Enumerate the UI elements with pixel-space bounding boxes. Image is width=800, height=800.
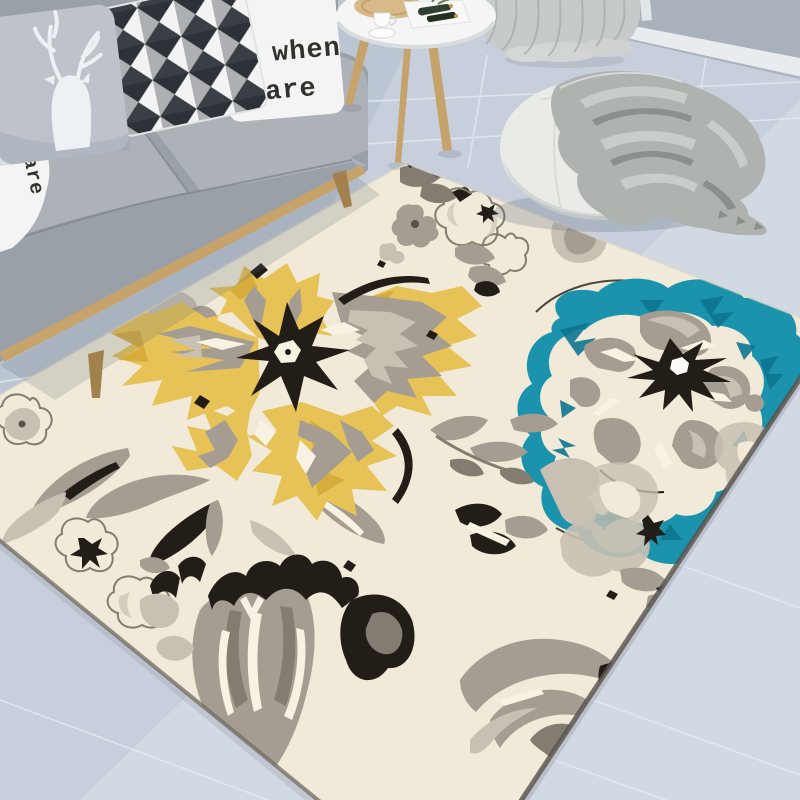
product-photo: are y when are <box>0 0 800 800</box>
saucer <box>369 28 395 38</box>
curtain-pool <box>580 39 632 57</box>
cup <box>374 13 390 27</box>
bottle-cap <box>449 4 453 8</box>
message-pillow-line2: are <box>264 74 318 108</box>
deer-pillow <box>0 3 130 166</box>
center-dot <box>285 349 291 355</box>
living-room-scene: are y when are <box>0 0 800 800</box>
flower-center <box>411 220 419 228</box>
bottle-cap <box>454 14 458 18</box>
leg-shadow <box>438 150 462 158</box>
leg-shadow <box>388 162 408 170</box>
curtain-pool <box>506 46 550 62</box>
flower-center <box>19 421 26 428</box>
wall-trim <box>640 0 652 21</box>
